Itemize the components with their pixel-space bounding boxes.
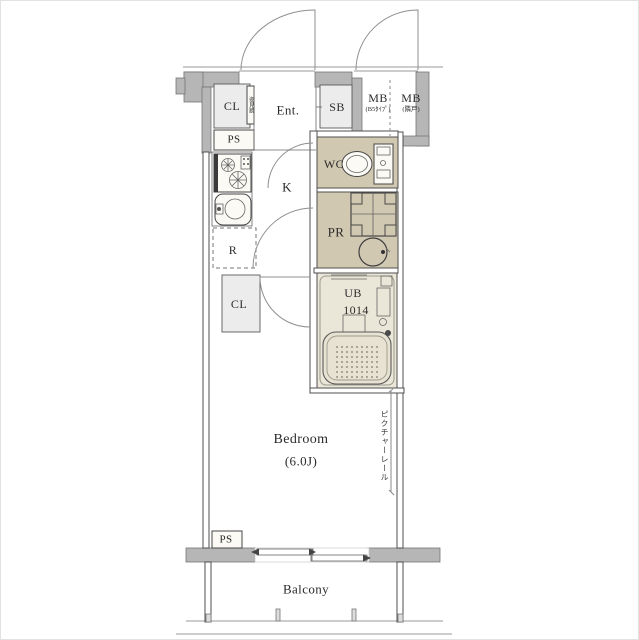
kitchen-sink-icon	[215, 194, 251, 225]
mb-left-label: MB	[368, 92, 387, 104]
unit-bath-label: UB	[344, 287, 361, 299]
mb-right-sub-label: (隣戸)	[402, 107, 419, 114]
pr-door-swing	[253, 208, 313, 268]
floorplan-drawing	[0, 0, 639, 640]
bedroom-label: Bedroom	[274, 433, 329, 447]
refrigerator-label: R	[229, 244, 237, 256]
mb-right-label: MB	[401, 92, 420, 104]
kitchen-label: K	[282, 181, 292, 194]
floorplan-image: CL 姿見鏡 Ent. SB MB (B5ﾀｲﾌﾟ) MB (隣戸) PS WC…	[0, 0, 639, 640]
closet-top-label: CL	[224, 100, 240, 112]
pipe-space-bottom-label: PS	[219, 535, 232, 546]
bedroom-size: (6.0J)	[285, 455, 317, 468]
pipe-space-top-label: PS	[227, 135, 240, 146]
closet-bottom-label: CL	[231, 298, 247, 310]
bedroom-door-swing	[260, 277, 310, 327]
window-icon	[251, 548, 371, 562]
unit-bath-size: 1014	[343, 304, 369, 316]
bathtub-icon	[323, 332, 391, 384]
entrance-door-swing	[241, 10, 315, 70]
mirror-label: 姿見鏡	[247, 97, 253, 114]
entrance-label: Ent.	[277, 104, 300, 117]
powder-room-label: PR	[328, 226, 345, 239]
balcony-railing	[206, 609, 403, 622]
balcony-label: Balcony	[283, 583, 329, 596]
mb-door-swing	[356, 10, 418, 70]
mb-left-sub-label: (B5ﾀｲﾌﾟ)	[366, 107, 391, 114]
wc-label: WC	[324, 158, 344, 170]
stove-icon	[214, 154, 251, 192]
picture-rail-label: ピクチャーレール	[380, 410, 388, 482]
picture-rail-line	[389, 389, 394, 495]
kitchen-fixtures	[212, 152, 252, 226]
shoebox-label: SB	[329, 101, 344, 113]
